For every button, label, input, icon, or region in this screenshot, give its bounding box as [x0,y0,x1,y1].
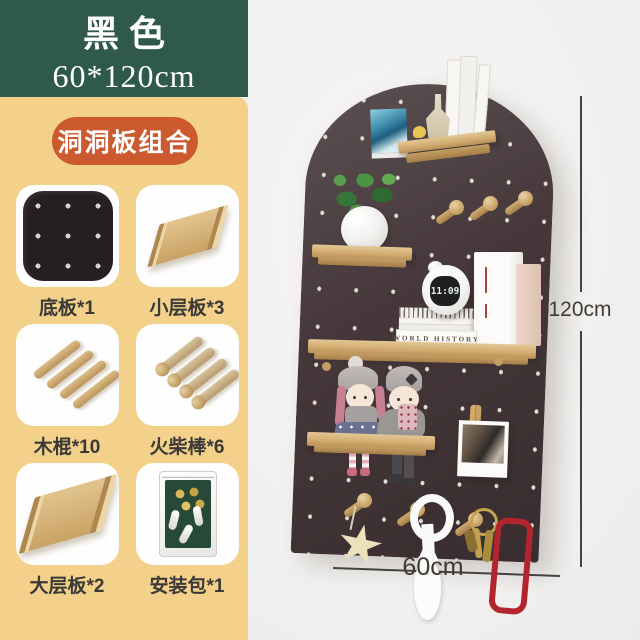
height-dimension-line-top [580,96,582,292]
color-size-header: 黑色 60*120cm [0,0,248,97]
component-label-hardware-bag: 安装包*1 [122,571,252,598]
peg-hook [504,191,538,221]
shelf-dowel [494,357,503,366]
component-label-wood-sticks: 木棍*10 [2,432,132,459]
component-panel: 洞洞板组合 底板*1 小层板*3 木棍*10 火柴棒*6 大层板*2 安装包*1 [0,97,248,640]
color-name: 黑色 [0,5,248,57]
polaroid-photo [457,420,509,478]
component-card-baseboard [16,185,119,287]
wood-sticks-icon [25,333,111,417]
component-card-match-pegs [136,324,239,426]
small-yellow-ornament [413,126,426,138]
component-card-hardware-bag [136,463,239,565]
large-shelf-icon [18,474,117,554]
product-photo: 120cm 60cm 11:09 WORLD HISTORY [248,0,640,640]
clock-time: 11:09 [431,286,460,297]
alarm-clock: 11:09 [420,261,472,315]
combo-badge: 洞洞板组合 [52,117,198,165]
height-dimension-line-bottom [580,331,582,567]
keys [466,508,536,608]
component-card-small-shelf [136,185,239,287]
star-peg [343,493,377,523]
white-books [445,55,494,143]
pink-book [516,264,541,346]
component-card-large-shelf [16,463,119,565]
boy-doll [374,366,430,484]
small-shelf-icon [147,205,229,268]
height-dimension-label: 120cm [542,298,618,322]
match-pegs-icon [145,333,231,417]
component-card-wood-sticks [16,324,119,426]
component-label-baseboard: 底板*1 [2,293,132,320]
hardware-bag-icon [159,471,217,557]
peg-hook [469,196,503,226]
width-dimension-label: 60cm [398,553,468,582]
shelf-dowel [322,362,331,371]
component-label-small-shelf: 小层板*3 [122,293,252,320]
component-label-match-pegs: 火柴棒*6 [122,432,252,459]
component-label-large-shelf: 大层板*2 [2,571,132,598]
size-label: 60*120cm [0,58,248,95]
red-lanyard [488,517,534,616]
peg-hook [435,200,469,230]
pegboard-icon [23,191,113,281]
